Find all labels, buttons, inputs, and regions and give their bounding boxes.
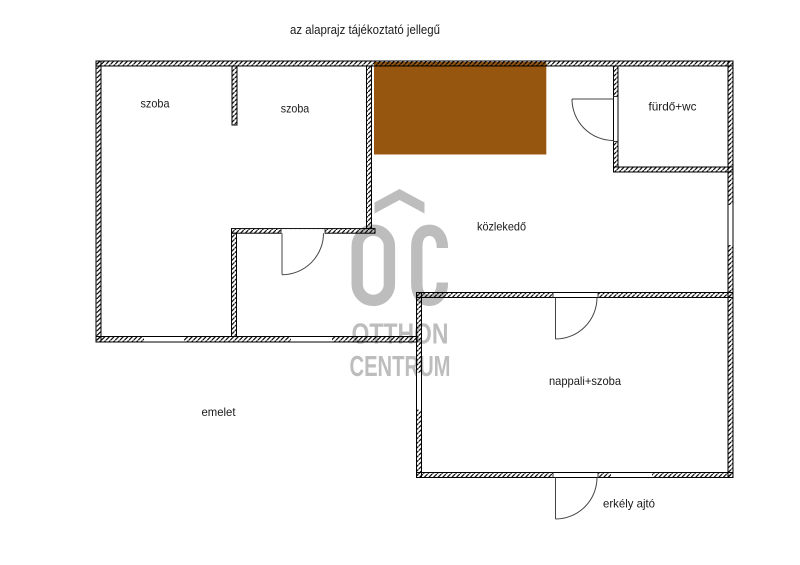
svg-text:az alaprajz tájékoztató jelleg: az alaprajz tájékoztató jellegű	[290, 23, 440, 37]
svg-text:emelet: emelet	[202, 405, 237, 419]
svg-text:szoba: szoba	[141, 97, 170, 111]
svg-text:szoba: szoba	[281, 102, 310, 116]
svg-text:fürdő+wc: fürdő+wc	[649, 100, 697, 114]
svg-text:nappali+szoba: nappali+szoba	[549, 374, 621, 388]
svg-text:OTTHON: OTTHON	[352, 319, 449, 351]
svg-text:CENTRUM: CENTRUM	[350, 351, 451, 383]
svg-text:közlekedő: közlekedő	[477, 220, 526, 234]
svg-text:erkély ajtó: erkély ajtó	[603, 497, 655, 511]
